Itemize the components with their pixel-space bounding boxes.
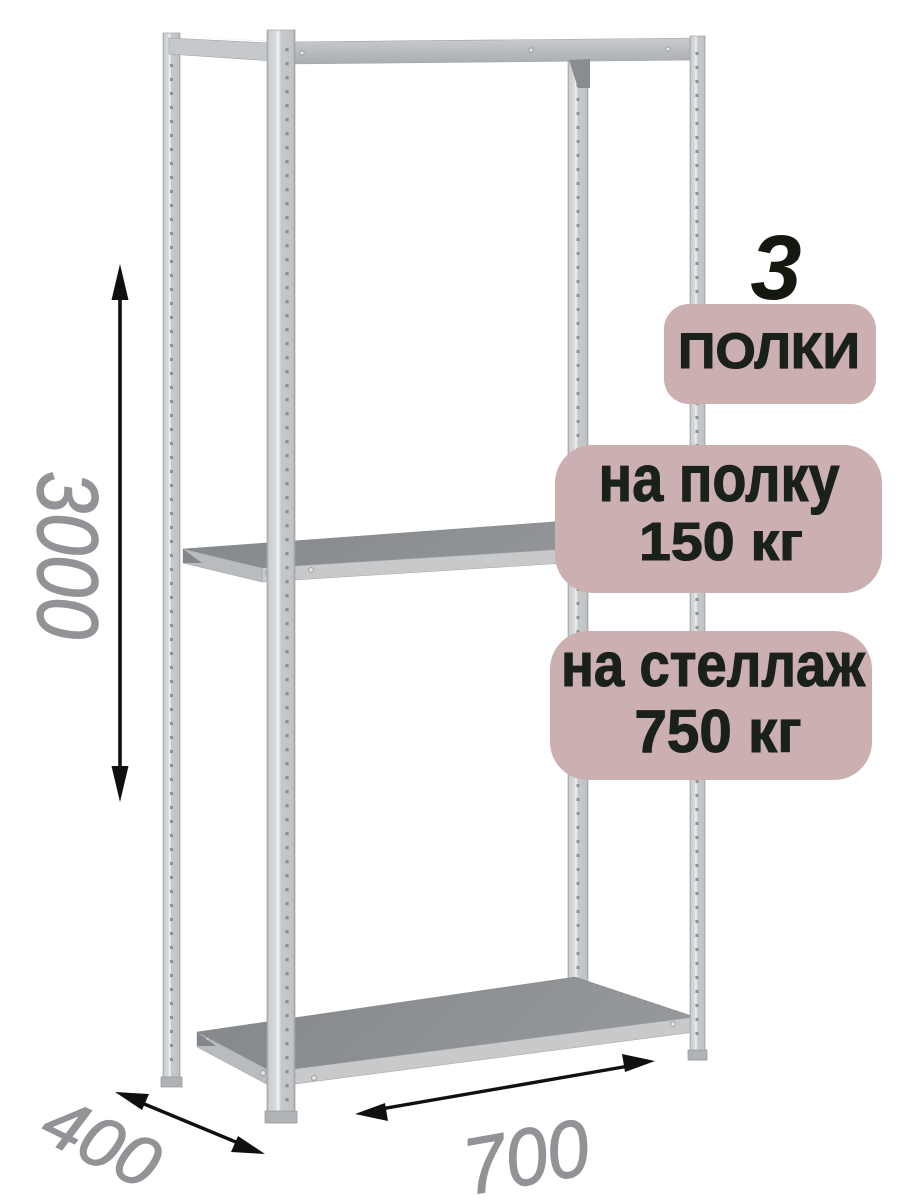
svg-text:ПОЛКИ: ПОЛКИ bbox=[678, 323, 860, 379]
svg-text:3: 3 bbox=[750, 217, 801, 319]
svg-text:750 кг: 750 кг bbox=[635, 698, 802, 765]
svg-text:на стеллаж: на стеллаж bbox=[561, 631, 866, 700]
svg-text:150 кг: 150 кг bbox=[639, 512, 803, 572]
svg-text:на полку: на полку bbox=[599, 441, 840, 515]
svg-text:3000: 3000 bbox=[19, 471, 115, 639]
